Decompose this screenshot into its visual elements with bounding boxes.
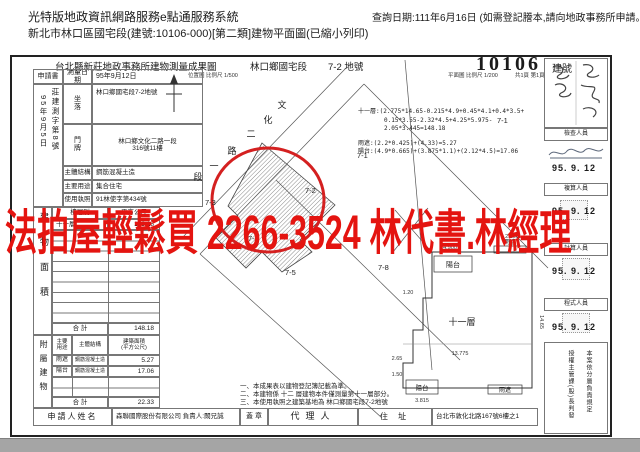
- annex-empty-rows: [52, 377, 160, 397]
- staff-role-programmer: 程式人員: [544, 298, 608, 311]
- query-date: 查詢日期:111年6月16日 (如需登記謄本,請向地政事務所申請。): [372, 9, 640, 24]
- road-char: 段: [193, 171, 202, 182]
- annex-row2-structure: 鋼筋混凝土造: [72, 366, 108, 377]
- field-label-location: 坐 落: [63, 84, 92, 124]
- parcel-label: 7-8: [378, 263, 389, 272]
- receipt-date-vertical: 95年9月5日: [38, 95, 49, 200]
- annex-side-label: 附屬建物: [38, 340, 49, 406]
- balcony-bottom-label: 陽台: [416, 383, 429, 392]
- document-subtitle: 新北市林口區國宅段(建號:10106-000)[第二類]建物平面圖(已縮小列印): [28, 25, 368, 41]
- annex-row1-structure: 鋼筋混凝土造: [72, 355, 108, 366]
- staff-role-inspector: 檢查人員: [544, 128, 608, 141]
- inspector-signature: [546, 143, 606, 161]
- annex-divider1: [72, 377, 73, 397]
- annex-row2-use: 陽台: [52, 366, 72, 377]
- road-char: 一: [209, 161, 218, 171]
- bottom-gray-strip: [0, 438, 640, 452]
- dim-label: 1.20: [403, 290, 414, 296]
- annex-divider2: [108, 377, 109, 397]
- annex-total-label: 合 計: [52, 397, 108, 408]
- system-title: 光特版地政資訊網路服務e點通服務系統: [28, 8, 239, 25]
- receipt-docno-vertical: 莊建測字第8號: [50, 88, 61, 203]
- road-char: 化: [263, 114, 272, 125]
- floor-label: 十一層: [448, 316, 475, 327]
- delegation-note-left: 授權主管課(股)長判發: [566, 350, 575, 430]
- scanned-building-survey-page: { "page": { "header": { "system_title": …: [0, 0, 640, 451]
- dim-label: 14.65: [538, 315, 544, 329]
- application-label-cell: 申請書: [33, 69, 63, 84]
- dim-label: 1.50: [392, 372, 403, 378]
- field-label-survey-date: 測量日期: [63, 69, 92, 84]
- north-arrow-icon: [166, 74, 182, 112]
- field-label-door-plate: 門 牌: [63, 124, 92, 166]
- foreclosure-ad-banner: 法拍屋輕鬆買 2266-3524 林代書.林經理: [5, 193, 572, 263]
- annex-col-use: 主要 用途: [52, 335, 72, 355]
- handwriting-scribble: [545, 59, 607, 127]
- road-char: 二: [246, 129, 255, 139]
- road-char: 文: [277, 99, 286, 110]
- floor-total-label: 合 計: [52, 323, 108, 335]
- annex-row1-use: 雨遮: [52, 355, 72, 366]
- canopy-bottom-label: 雨遮: [499, 386, 511, 394]
- parcel-label: 7-1: [357, 151, 368, 160]
- dim-label: 2.65: [392, 356, 403, 362]
- calculator-date: 95. 9. 12: [552, 266, 596, 276]
- delegation-note-cell: [544, 342, 608, 434]
- parcel-label: 7-1: [497, 116, 508, 125]
- delegation-note-right: 本案依分層負責規定: [584, 350, 593, 430]
- applicant-label-cell: 申請人姓名: [33, 408, 112, 426]
- field-label-use: 主要用途: [63, 180, 92, 193]
- dim-label: 3.815: [415, 398, 429, 404]
- annex-col-structure: 主體結構: [72, 335, 108, 355]
- road-char: 路: [227, 145, 236, 156]
- approval-handwriting-box: [544, 58, 608, 128]
- field-label-structure: 主體結構: [63, 166, 92, 180]
- parcel-label: 7-5: [285, 268, 296, 277]
- dim-label: 13.775: [452, 351, 469, 357]
- inspector-date: 95. 9. 12: [552, 163, 596, 173]
- programmer-date: 95. 9. 12: [552, 322, 596, 332]
